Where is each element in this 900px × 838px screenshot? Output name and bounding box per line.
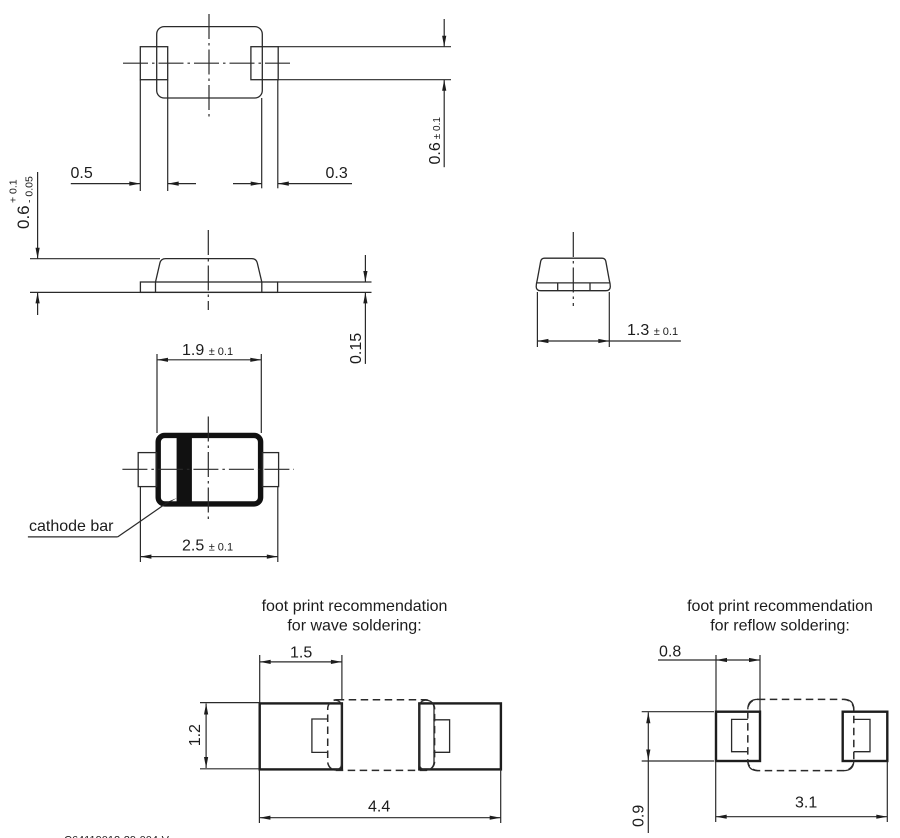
svg-text:0.3: 0.3: [326, 165, 348, 182]
svg-text:foot print recommendation: foot print recommendation: [687, 598, 873, 615]
svg-text:4.4: 4.4: [368, 799, 390, 816]
svg-text:+ 0.1: + 0.1: [8, 179, 20, 203]
svg-text:C64119012-29-004-V: C64119012-29-004-V: [64, 835, 170, 838]
svg-text:0.9: 0.9: [631, 805, 648, 827]
svg-text:0.8: 0.8: [659, 644, 681, 661]
svg-text:cathode bar: cathode bar: [29, 518, 114, 535]
svg-text:3.1: 3.1: [795, 794, 817, 811]
svg-text:foot print recommendation: foot print recommendation: [262, 598, 448, 615]
svg-text:for reflow soldering:: for reflow soldering:: [710, 618, 850, 635]
svg-text:- 0.05: - 0.05: [24, 176, 36, 203]
svg-text:0.5: 0.5: [71, 165, 93, 182]
svg-text:1.5: 1.5: [290, 645, 312, 662]
svg-text:for wave soldering:: for wave soldering:: [287, 618, 421, 635]
svg-text:0.6: 0.6: [14, 205, 33, 229]
svg-text:1.2: 1.2: [187, 724, 204, 746]
svg-text:0.15: 0.15: [348, 333, 365, 364]
